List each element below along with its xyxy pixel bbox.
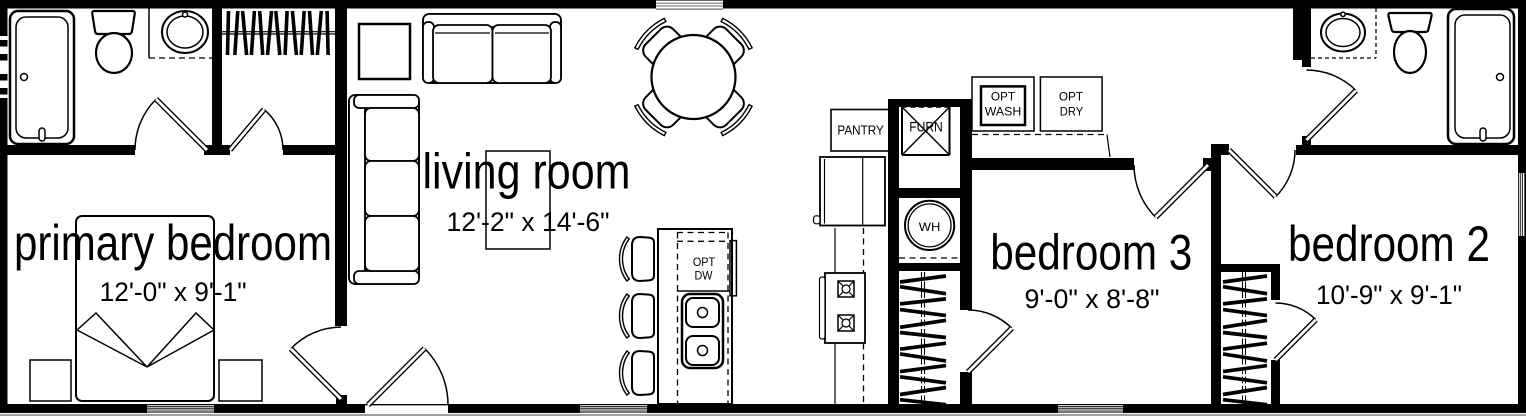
svg-text:WASH: WASH — [985, 107, 1021, 119]
svg-text:primary bedroom: primary bedroom — [14, 215, 332, 271]
svg-text:living room: living room — [423, 144, 631, 200]
svg-text:FURN: FURN — [909, 120, 943, 135]
svg-text:12'-0" x 9'-1": 12'-0" x 9'-1" — [100, 277, 247, 307]
svg-text:12'-2" x 14'-6": 12'-2" x 14'-6" — [447, 207, 610, 237]
svg-text:DW: DW — [695, 270, 713, 283]
svg-text:PANTRY: PANTRY — [837, 123, 884, 138]
svg-text:10'-9" x 9'-1": 10'-9" x 9'-1" — [1316, 280, 1462, 310]
svg-text:OPT: OPT — [1059, 92, 1083, 104]
svg-text:bedroom 2: bedroom 2 — [1288, 216, 1490, 272]
svg-text:OPT: OPT — [991, 92, 1015, 104]
svg-text:bedroom 3: bedroom 3 — [990, 225, 1192, 281]
svg-text:DRY: DRY — [1060, 107, 1084, 119]
svg-text:WH: WH — [919, 220, 941, 234]
svg-text:OPT: OPT — [693, 256, 715, 269]
svg-text:9'-0" x 8'-8": 9'-0" x 8'-8" — [1025, 284, 1160, 314]
